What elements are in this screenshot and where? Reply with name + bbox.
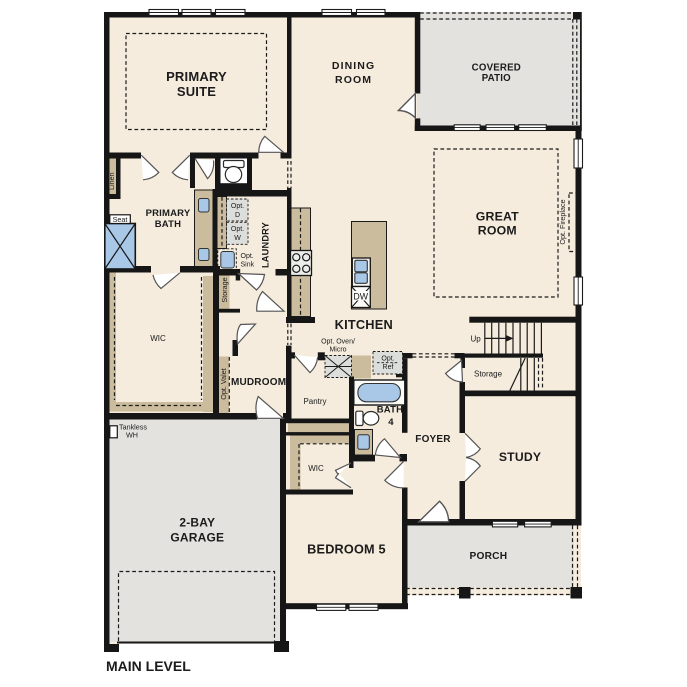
svg-text:BATH: BATH <box>155 219 181 230</box>
svg-text:Opt.: Opt. <box>381 356 394 363</box>
svg-text:COVERED: COVERED <box>472 63 521 74</box>
svg-text:PRIMARY: PRIMARY <box>166 69 227 84</box>
svg-text:D: D <box>235 212 240 219</box>
svg-text:WIC: WIC <box>150 334 166 343</box>
svg-text:Ref: Ref <box>383 364 394 371</box>
svg-text:GREAT: GREAT <box>476 209 519 223</box>
svg-text:4: 4 <box>388 417 394 428</box>
svg-text:MAIN LEVEL: MAIN LEVEL <box>106 658 191 674</box>
svg-text:Linen: Linen <box>107 172 116 190</box>
svg-text:KITCHEN: KITCHEN <box>335 317 393 332</box>
svg-text:GARAGE: GARAGE <box>170 531 224 545</box>
svg-text:Storage: Storage <box>220 277 229 302</box>
svg-text:STUDY: STUDY <box>499 450 541 464</box>
svg-text:DW: DW <box>353 292 368 302</box>
svg-text:FOYER: FOYER <box>415 434 451 445</box>
svg-text:Seat: Seat <box>113 215 128 224</box>
svg-text:LAUNDRY: LAUNDRY <box>261 222 271 268</box>
svg-text:DINING: DINING <box>332 60 375 72</box>
svg-text:Storage: Storage <box>474 370 503 379</box>
svg-text:2-BAY: 2-BAY <box>179 516 215 530</box>
svg-text:Sink: Sink <box>241 262 255 269</box>
svg-text:Opt. Valet: Opt. Valet <box>219 368 228 399</box>
svg-text:PORCH: PORCH <box>470 551 508 562</box>
svg-text:PATIO: PATIO <box>482 73 511 84</box>
svg-text:WH: WH <box>126 431 138 440</box>
svg-text:Opt.: Opt. <box>231 203 244 210</box>
svg-text:Opt. Oven/: Opt. Oven/ <box>321 339 355 346</box>
svg-text:MUDROOM: MUDROOM <box>231 377 286 388</box>
svg-text:SUITE: SUITE <box>177 84 216 99</box>
svg-text:BEDROOM 5: BEDROOM 5 <box>307 542 386 556</box>
svg-text:WIC: WIC <box>308 464 324 473</box>
svg-text:Opt. Fireplace: Opt. Fireplace <box>558 199 567 244</box>
svg-text:W: W <box>234 235 241 242</box>
svg-text:ROOM: ROOM <box>335 74 372 86</box>
svg-text:Micro: Micro <box>329 347 346 354</box>
svg-text:Pantry: Pantry <box>303 397 326 406</box>
svg-text:Opt.: Opt. <box>231 226 244 233</box>
svg-text:PRIMARY: PRIMARY <box>146 208 191 219</box>
svg-text:ROOM: ROOM <box>478 224 517 238</box>
svg-text:Up: Up <box>471 335 482 344</box>
svg-text:Opt.: Opt. <box>241 253 254 260</box>
svg-text:BATH: BATH <box>377 405 403 416</box>
